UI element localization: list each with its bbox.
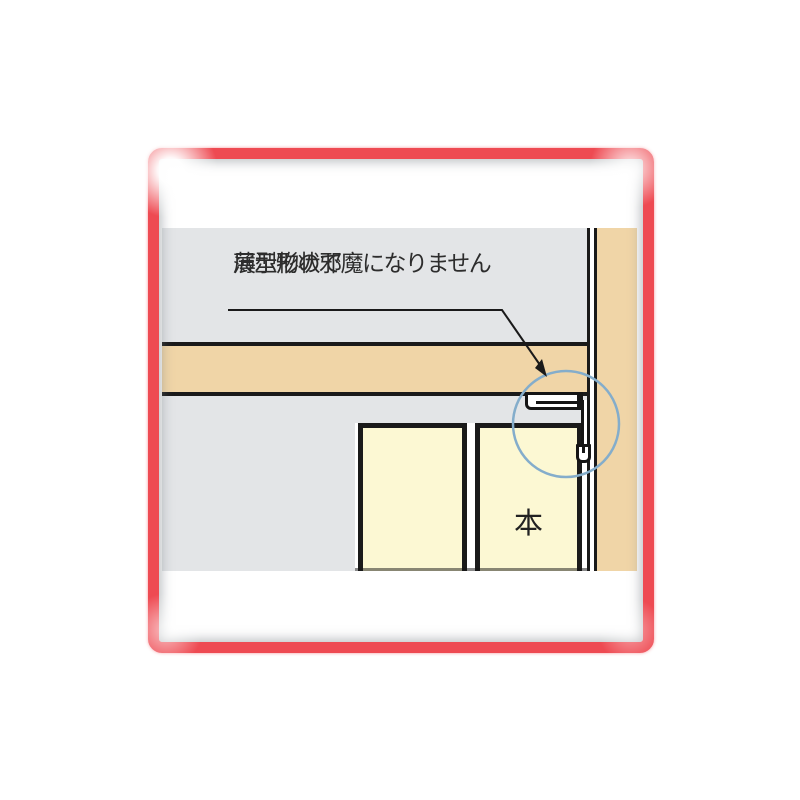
shelf-drawing: 本 薄型形状で 展示物の邪魔になりません	[162, 228, 637, 571]
overlay-graphics	[162, 228, 637, 571]
frame-glow-top-left	[130, 130, 220, 220]
frame-glow-top-right	[586, 132, 666, 212]
catalog-illustration: 本 薄型形状で 展示物の邪魔になりません	[0, 0, 800, 800]
highlight-circle	[513, 371, 619, 477]
annotation-line-2: 展示物の邪魔になりません	[233, 247, 490, 279]
leader-line	[228, 310, 540, 365]
frame-glow-bottom-left	[132, 588, 208, 664]
frame-glow-bottom-right	[592, 592, 662, 662]
